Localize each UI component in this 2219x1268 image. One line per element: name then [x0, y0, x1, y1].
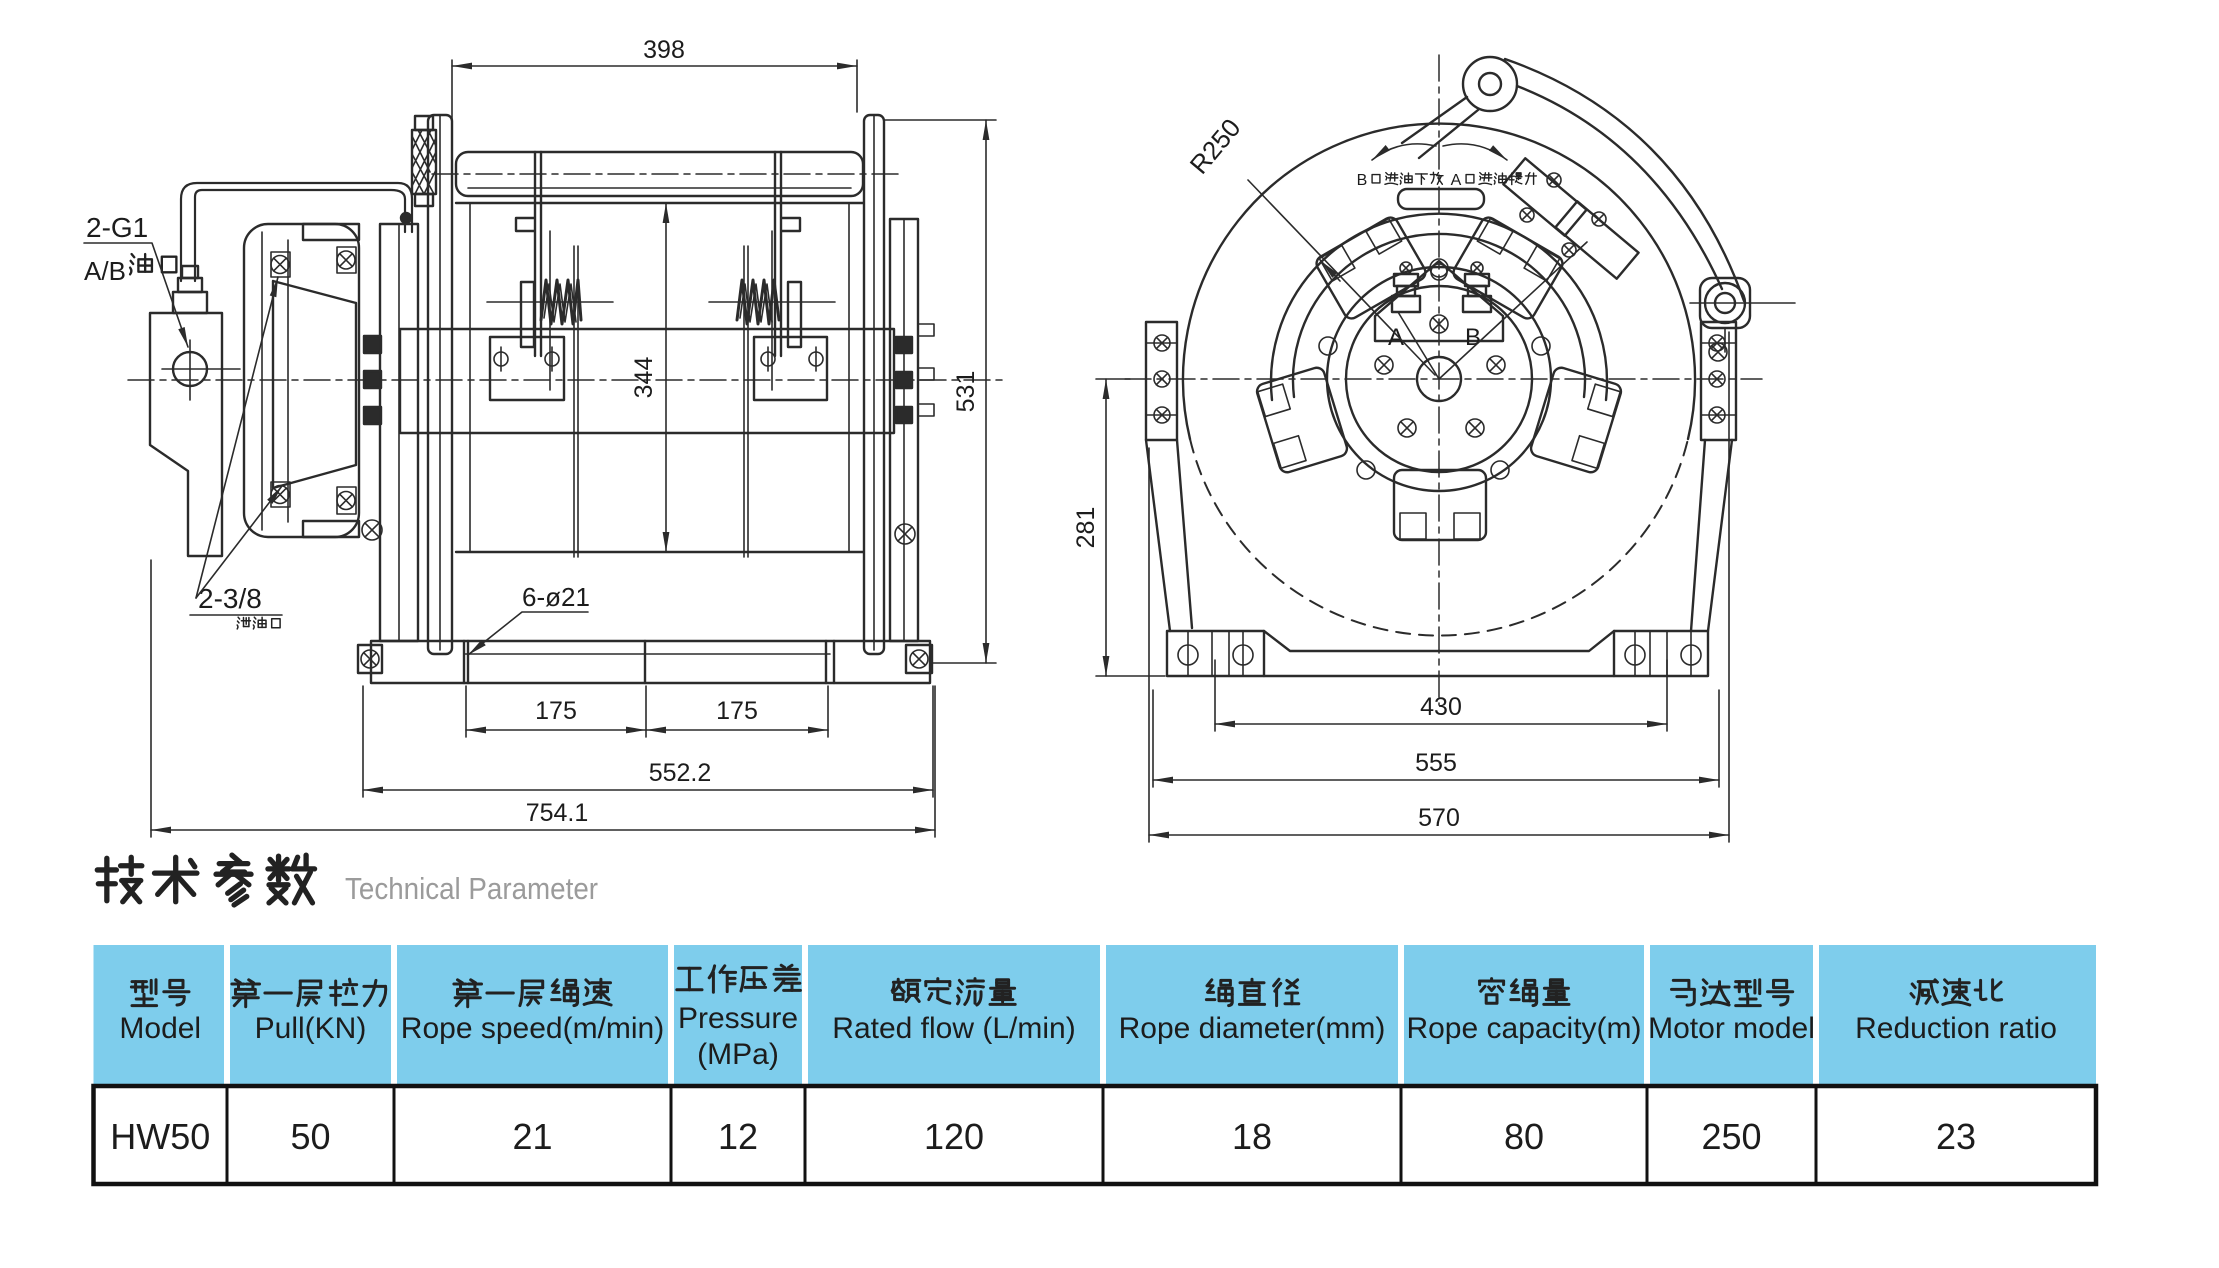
svg-text:21: 21 [512, 1116, 552, 1157]
svg-text:570: 570 [1418, 804, 1460, 832]
svg-text:50: 50 [290, 1116, 330, 1157]
svg-text:120: 120 [924, 1116, 984, 1157]
svg-text:B: B [1357, 172, 1368, 189]
svg-text:80: 80 [1504, 1116, 1544, 1157]
svg-text:555: 555 [1415, 749, 1457, 777]
svg-text:2-G1: 2-G1 [86, 212, 148, 243]
svg-text:344: 344 [630, 357, 658, 399]
svg-text:Rope capacity(m): Rope capacity(m) [1406, 1012, 1641, 1045]
svg-text:531: 531 [952, 371, 980, 413]
svg-text:754.1: 754.1 [526, 799, 589, 827]
svg-text:Pressure: Pressure [678, 1002, 798, 1035]
svg-text:Pull(KN): Pull(KN) [255, 1012, 367, 1045]
svg-text:18: 18 [1232, 1116, 1272, 1157]
svg-text:23: 23 [1936, 1116, 1976, 1157]
svg-text:175: 175 [535, 697, 577, 725]
svg-text:A/B: A/B [84, 256, 126, 286]
svg-text:Model: Model [119, 1012, 201, 1045]
svg-text:398: 398 [643, 36, 685, 64]
svg-text:175: 175 [716, 697, 758, 725]
svg-text:Motor model: Motor model [1648, 1012, 1815, 1045]
svg-text:Rated flow (L/min): Rated flow (L/min) [832, 1012, 1075, 1045]
svg-text:250: 250 [1701, 1116, 1761, 1157]
svg-text:Technical Parameter: Technical Parameter [345, 871, 598, 906]
svg-text:Rope diameter(mm): Rope diameter(mm) [1119, 1012, 1386, 1045]
svg-text:HW50: HW50 [110, 1116, 210, 1157]
svg-text:(MPa): (MPa) [697, 1038, 779, 1071]
svg-text:Rope speed(m/min): Rope speed(m/min) [401, 1012, 664, 1045]
svg-text:281: 281 [1072, 507, 1100, 549]
svg-text:430: 430 [1420, 693, 1462, 721]
svg-text:552.2: 552.2 [649, 759, 712, 787]
svg-text:2-3/8: 2-3/8 [198, 583, 262, 614]
svg-text:A: A [1451, 172, 1462, 189]
svg-text:12: 12 [718, 1116, 758, 1157]
svg-text:Reduction ratio: Reduction ratio [1855, 1012, 2057, 1045]
svg-text:6-ø21: 6-ø21 [522, 582, 590, 612]
